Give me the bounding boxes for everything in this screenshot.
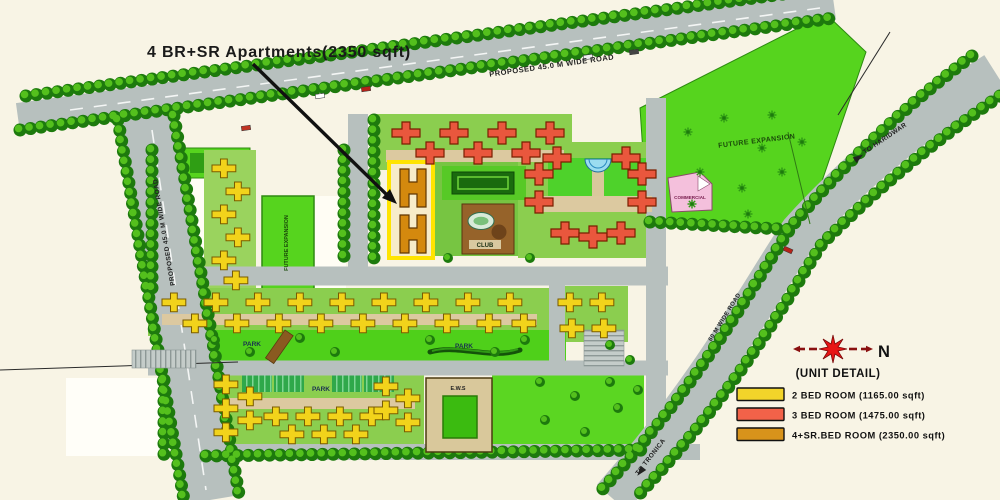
hedge-garden (452, 172, 514, 194)
ews-label: E.W.S (451, 386, 466, 392)
palm-tree-icon (738, 184, 747, 193)
legend-label-3br: 3 BED ROOM (1475.00 sqft) (792, 411, 925, 421)
legend-label-2br: 2 BED ROOM (1165.00 sqft) (792, 391, 925, 401)
palm-tree-icon (744, 210, 753, 219)
palm-tree-icon (720, 114, 729, 123)
park-label-1: PARK (243, 341, 261, 348)
compass-star-icon (819, 335, 847, 363)
legend-swatch-2br (737, 388, 784, 401)
palm-tree-icon (688, 200, 697, 209)
palm-tree-icon (798, 138, 807, 147)
club-label: CLUB (477, 243, 494, 249)
legend-label-4brsr: 4+SR.BED ROOM (2350.00 sqft) (792, 431, 945, 441)
legend-item-2br: 2 BED ROOM (1165.00 sqft) (737, 388, 925, 401)
palm-tree-icon (768, 111, 777, 120)
legend-swatch-3br (737, 408, 784, 421)
legend-swatch-4brsr (737, 428, 784, 441)
car-icon (629, 49, 639, 55)
parking-strip (132, 350, 196, 368)
car-icon (241, 125, 251, 131)
legend-item-3br: 3 BED ROOM (1475.00 sqft) (737, 408, 925, 421)
commercial-label: COMMERCIAL (674, 195, 706, 200)
palm-tree-icon (684, 128, 693, 137)
site-plan-page: PROPOSED 45.0 M WIDE ROAD PROPOSED 45.0 … (0, 0, 1000, 500)
site-plan-map: PROPOSED 45.0 M WIDE ROAD PROPOSED 45.0 … (0, 0, 1000, 500)
future-expansion-west-label: FUTURE EXPANSION (284, 215, 290, 271)
palm-tree-icon (696, 168, 705, 177)
park-label-2: PARK (455, 343, 473, 350)
park-label-3: PARK (312, 386, 330, 393)
palm-tree-icon (778, 168, 787, 177)
car-icon (361, 86, 371, 92)
legend-item-4brsr: 4+SR.BED ROOM (2350.00 sqft) (737, 428, 945, 441)
car-icon (315, 93, 325, 99)
legend-title: (UNIT DETAIL) (796, 368, 881, 380)
annotation-label: 4 BR+SR Apartments(2350 sqft) (147, 44, 411, 61)
compass-north-label: N (878, 343, 890, 361)
palm-tree-icon (758, 144, 767, 153)
